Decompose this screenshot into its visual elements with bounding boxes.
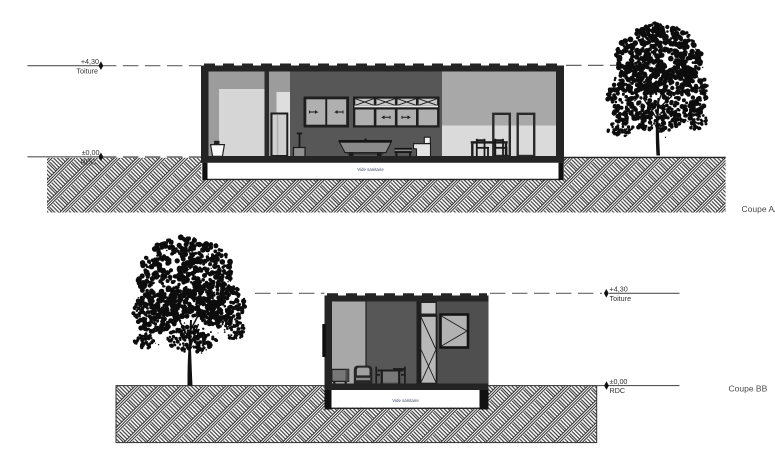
svg-text:Toiture: Toiture <box>76 66 98 75</box>
svg-text:±0,00: ±0,00 <box>610 377 628 386</box>
svg-text:±0,00: ±0,00 <box>82 148 100 157</box>
svg-text:RDC: RDC <box>610 386 626 395</box>
svg-text:+4,30: +4,30 <box>81 57 99 66</box>
svg-text:Vide sanitaire: Vide sanitaire <box>357 167 384 172</box>
svg-text:+4,30: +4,30 <box>610 285 628 294</box>
svg-text:Coupe BB: Coupe BB <box>729 384 768 394</box>
svg-text:Vide sanitaire: Vide sanitaire <box>392 398 419 403</box>
svg-text:Toiture: Toiture <box>610 294 632 303</box>
svg-text:Coupe AA: Coupe AA <box>742 204 775 214</box>
svg-text:RDC: RDC <box>80 158 96 167</box>
